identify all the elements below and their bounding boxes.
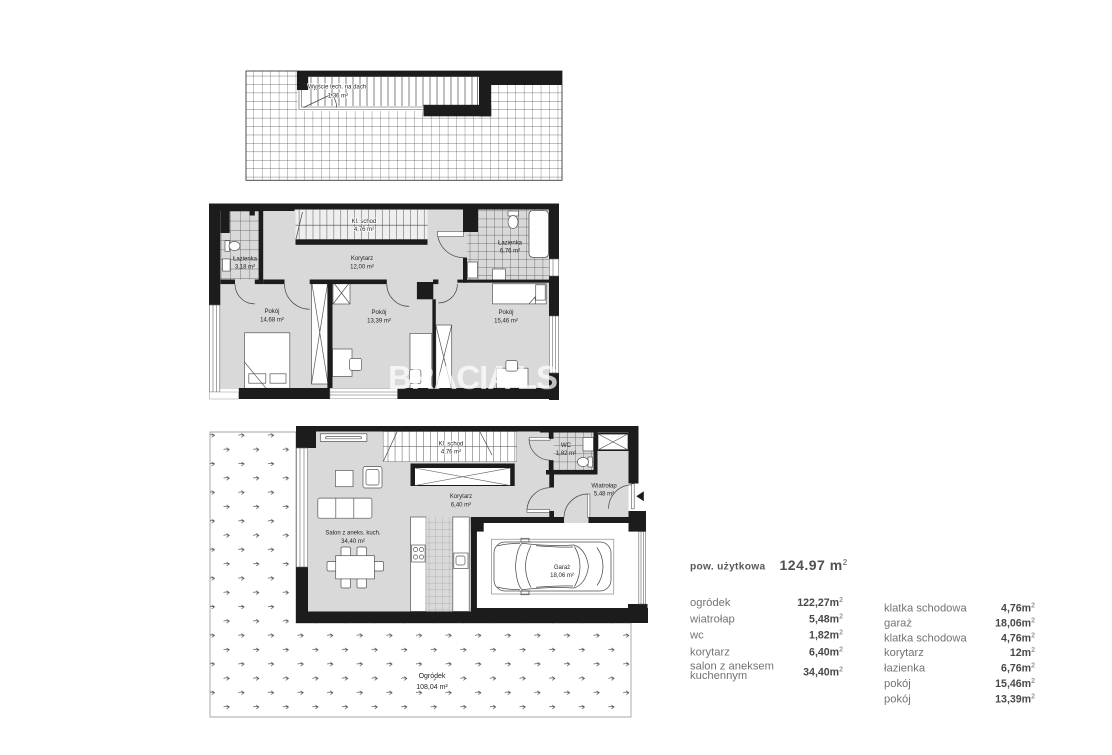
svg-text:15,46 m²: 15,46 m² — [494, 319, 518, 325]
svg-text:Korytarz: Korytarz — [450, 494, 472, 500]
svg-text:Pokój: Pokój — [264, 309, 279, 315]
svg-text:pow. użytkowa: pow. użytkowa — [690, 562, 765, 573]
svg-text:Kl. schod: Kl. schod — [352, 219, 377, 225]
svg-text:122,27m2: 122,27m2 — [797, 597, 843, 609]
svg-text:korytarz: korytarz — [690, 647, 730, 659]
svg-text:4,76m2: 4,76m2 — [1001, 633, 1035, 645]
svg-text:18,06 m²: 18,06 m² — [550, 573, 574, 579]
svg-text:6,40 m²: 6,40 m² — [451, 503, 471, 509]
svg-text:1,36 m²: 1,36 m² — [328, 94, 348, 100]
svg-text:15,46m2: 15,46m2 — [995, 678, 1035, 690]
svg-text:4,76 m²: 4,76 m² — [354, 227, 374, 233]
svg-text:34,40m2: 34,40m2 — [803, 667, 843, 679]
svg-text:BRACIA LS: BRACIA LS — [388, 359, 559, 396]
svg-text:klatka schodowa: klatka schodowa — [884, 602, 967, 614]
svg-text:Pokój: Pokój — [498, 310, 513, 316]
svg-text:wiatrołap: wiatrołap — [689, 613, 735, 625]
svg-text:Łazienka: Łazienka — [498, 241, 523, 247]
svg-text:13,39m2: 13,39m2 — [995, 693, 1035, 705]
svg-text:kuchennym: kuchennym — [690, 670, 747, 682]
svg-text:Korytarz: Korytarz — [351, 256, 373, 262]
svg-text:korytarz: korytarz — [884, 647, 924, 659]
svg-text:6,40m2: 6,40m2 — [809, 647, 843, 659]
svg-text:WC: WC — [561, 443, 572, 449]
svg-text:12,00 m²: 12,00 m² — [350, 265, 374, 271]
svg-text:ogródek: ogródek — [690, 597, 731, 609]
svg-text:pokój: pokój — [884, 693, 911, 705]
svg-text:1,82 m²: 1,82 m² — [556, 451, 576, 457]
svg-text:4,76 m²: 4,76 m² — [441, 450, 461, 456]
svg-text:18,06m2: 18,06m2 — [995, 617, 1035, 629]
svg-text:Wiatrołap: Wiatrołap — [591, 484, 617, 490]
svg-text:108,04 m²: 108,04 m² — [416, 684, 448, 691]
svg-text:3,18 m²: 3,18 m² — [235, 265, 255, 271]
svg-text:14,68 m²: 14,68 m² — [260, 318, 284, 324]
svg-text:Salon z aneks. kuch.: Salon z aneks. kuch. — [325, 531, 381, 537]
svg-text:pokój: pokój — [884, 678, 911, 690]
svg-text:5,48 m²: 5,48 m² — [594, 492, 614, 498]
svg-text:Kl. schod: Kl. schod — [439, 442, 464, 448]
svg-text:garaż: garaż — [884, 617, 912, 629]
svg-text:1,82m2: 1,82m2 — [809, 630, 843, 642]
svg-text:6,76m2: 6,76m2 — [1001, 663, 1035, 675]
svg-text:5,48m2: 5,48m2 — [809, 613, 843, 625]
svg-text:6,76 m²: 6,76 m² — [500, 249, 520, 255]
svg-text:Ogródek: Ogródek — [419, 673, 446, 680]
svg-text:4,76m2: 4,76m2 — [1001, 602, 1035, 614]
svg-text:Pokój: Pokój — [371, 310, 386, 316]
svg-text:124.97 m2: 124.97 m2 — [780, 557, 848, 573]
svg-text:Garaż: Garaż — [554, 565, 570, 571]
svg-text:łazienka: łazienka — [884, 663, 926, 675]
svg-text:34,40 m²: 34,40 m² — [341, 539, 365, 545]
svg-text:Łazienka: Łazienka — [233, 257, 258, 263]
svg-text:klatka schodowa: klatka schodowa — [884, 633, 967, 645]
svg-text:Wyjście tech. na dach: Wyjście tech. na dach — [308, 85, 366, 91]
svg-text:wc: wc — [689, 630, 704, 642]
svg-text:13,39 m²: 13,39 m² — [367, 319, 391, 325]
